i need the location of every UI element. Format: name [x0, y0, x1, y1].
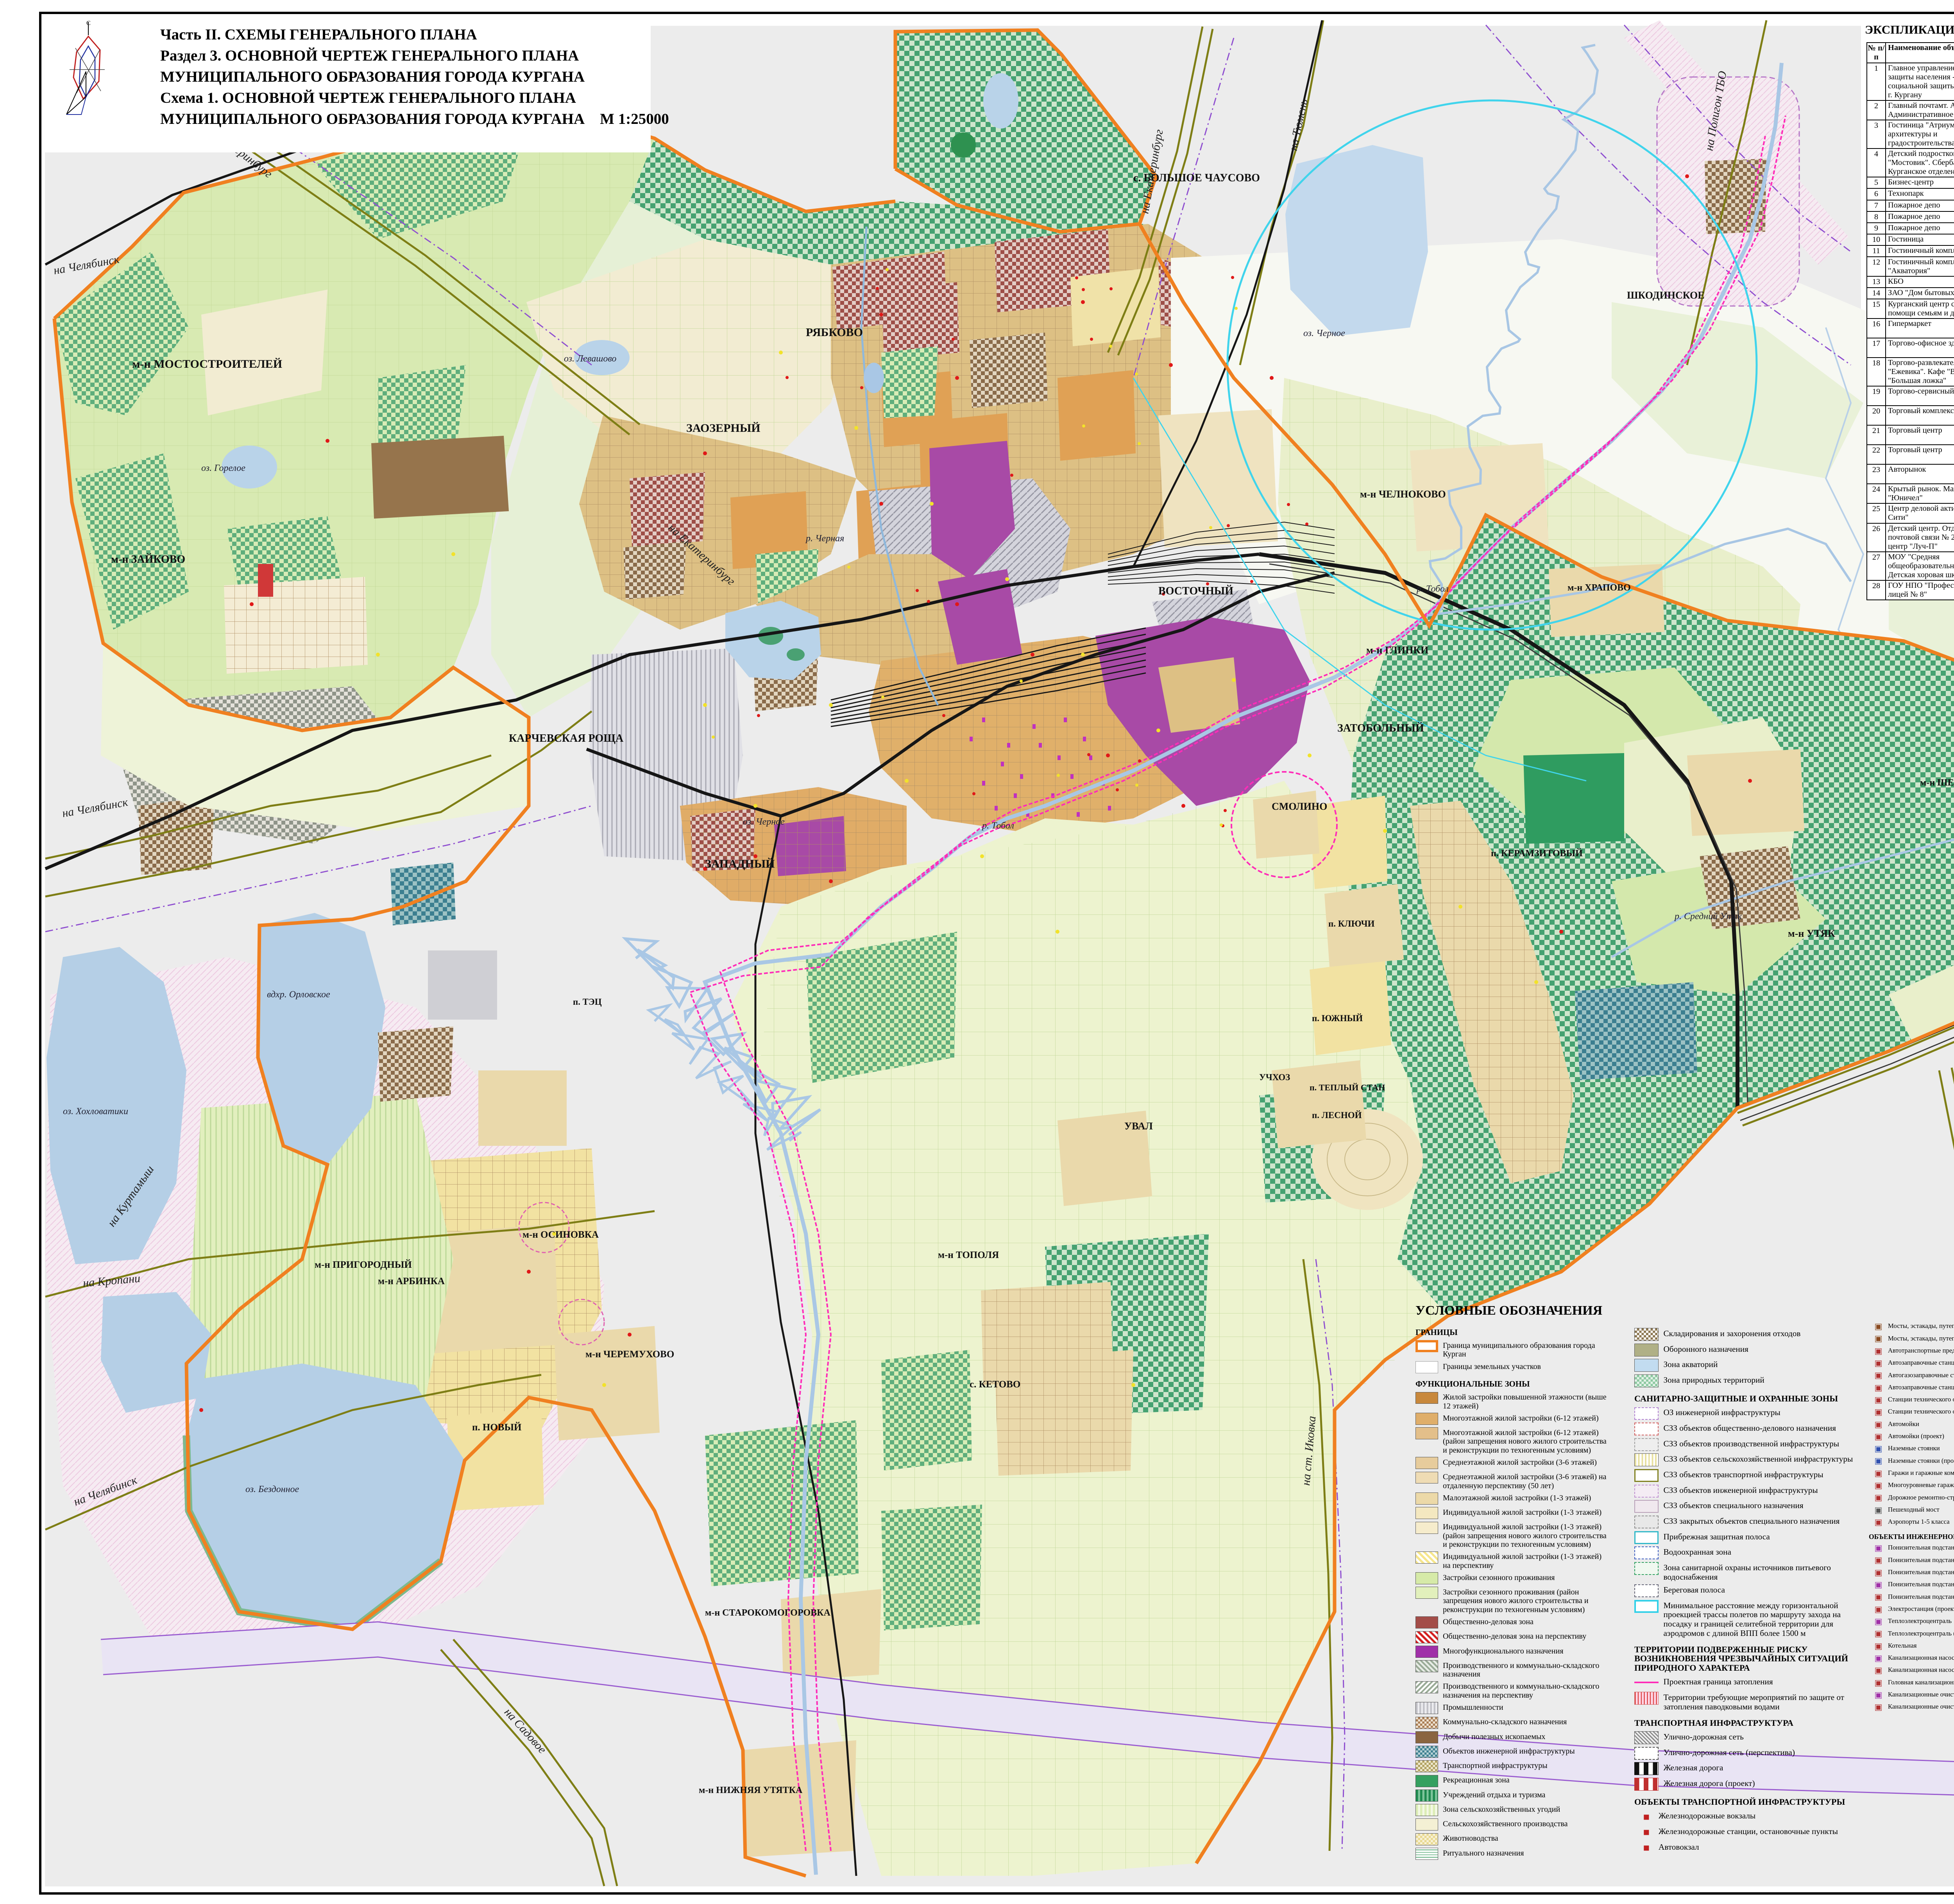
- svg-text:С: С: [86, 20, 91, 27]
